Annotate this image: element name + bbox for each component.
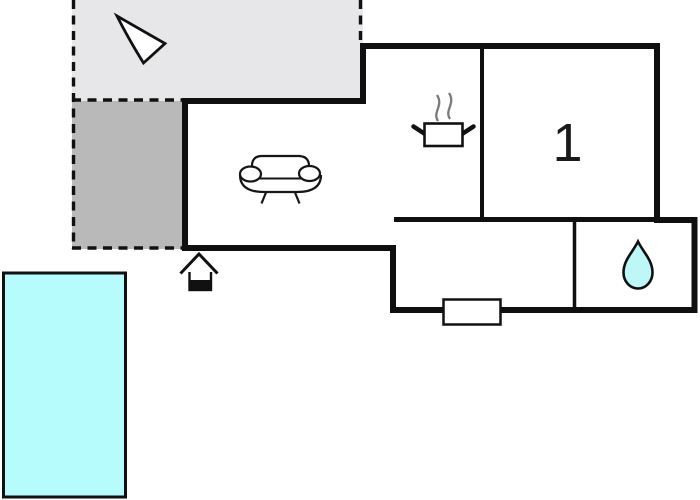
pot-body [425, 124, 463, 147]
entrance-house-icon [181, 254, 218, 290]
window-marker [444, 300, 501, 325]
sofa-armrest-left [240, 167, 261, 182]
floorplan-canvas: 1 [0, 0, 700, 500]
floorplan-svg: 1 [0, 0, 700, 500]
pool [4, 273, 126, 497]
sofa-armrest-right [299, 166, 320, 181]
entrance-house-base [189, 280, 213, 290]
entrance-roof-fill [182, 254, 216, 272]
terrace-lower-area [72, 101, 186, 249]
bedroom-number-label: 1 [552, 113, 582, 173]
